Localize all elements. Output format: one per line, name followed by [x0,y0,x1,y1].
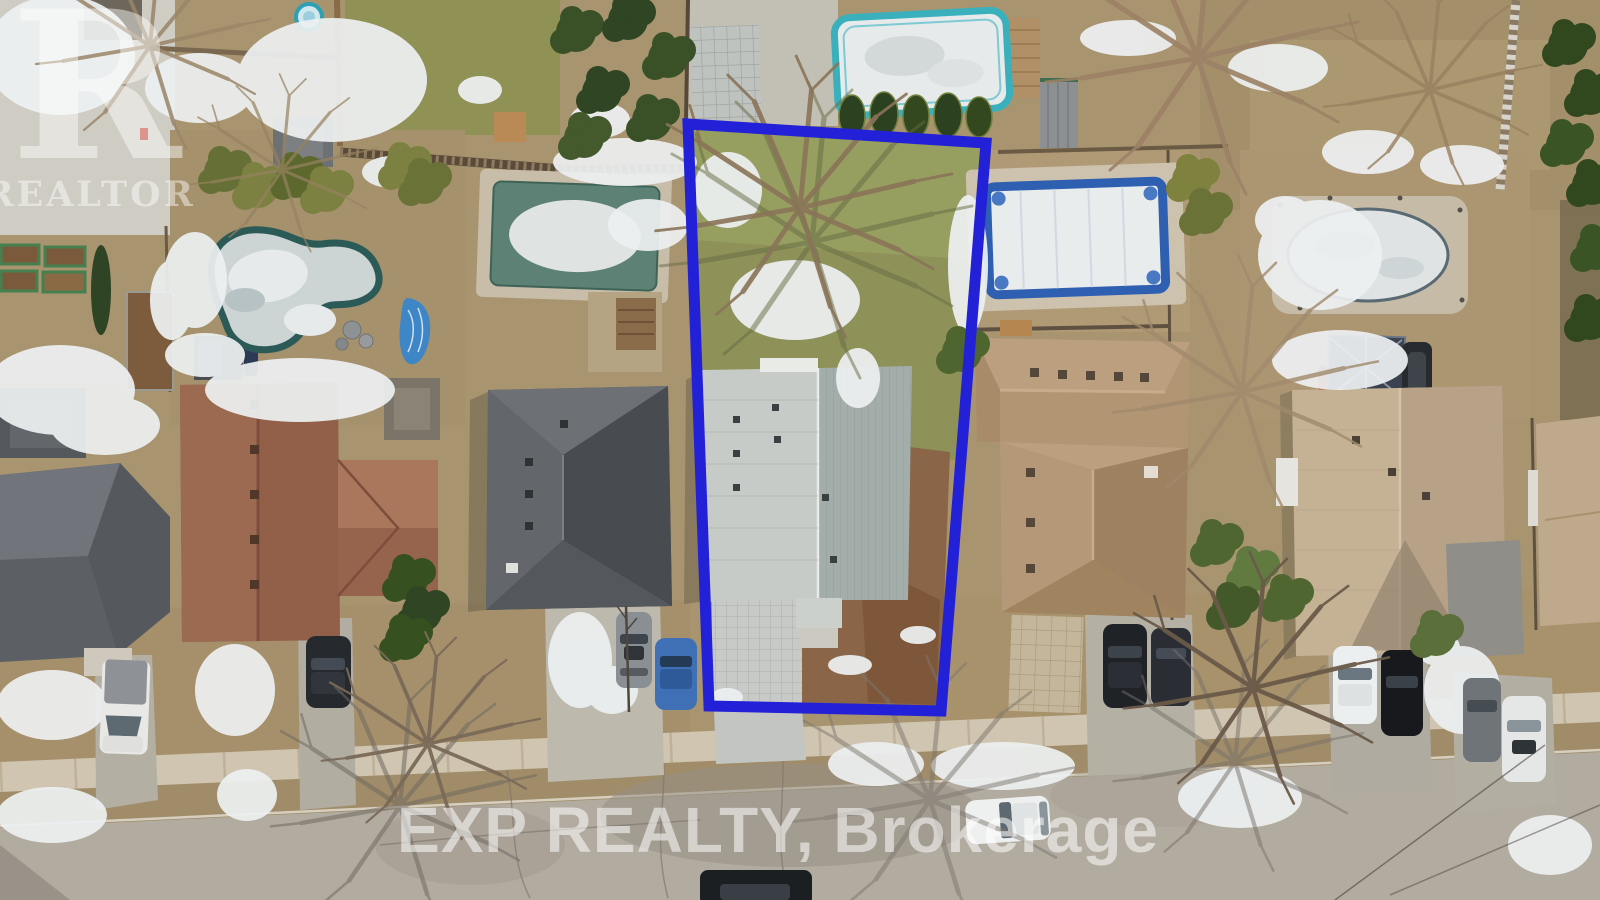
house-dark-gray [468,386,672,612]
windshield [1507,720,1541,732]
roof-ridge [1000,390,1165,392]
windshield [620,634,648,644]
realtor-logo-watermark: R REALTOR [0,0,196,215]
roof-left-facet [700,368,818,602]
brokerage-watermark: EXP REALTY, Brokerage [397,794,1159,866]
eave-strip [760,358,818,372]
windshield [105,715,142,736]
wood-gate [494,112,526,142]
house-shadow [468,392,488,612]
white-van [99,659,150,755]
house-tan [975,338,1190,618]
gate-tan-house [1000,320,1032,336]
front-porch [796,598,842,628]
patio-neighbor-top [690,25,761,121]
chimney [1144,466,1158,478]
paver-walk-tan-house [1008,615,1083,713]
windshield [311,658,345,670]
tarp-cover [104,659,148,704]
windshield [1108,646,1142,658]
gray-car [616,612,652,688]
pool-stairs-area [588,292,662,372]
aerial-photo-canvas: R REALTOR EXP REALTY, Brokerage [0,0,1600,900]
windshield [1386,676,1418,688]
subject-driveway-apron [714,708,806,764]
windshield [1467,700,1497,712]
windshield [660,656,692,667]
slim-cedar [91,245,111,335]
subject-house [684,358,912,628]
gray-suv-far-right [1463,678,1501,762]
dark-suv-right-2 [1151,628,1191,706]
dark-car-bottom [700,870,812,900]
white-car-right [1333,646,1377,724]
windshield [1338,668,1372,680]
white-car-far-right [1502,696,1546,782]
aerial-photo: R REALTOR EXP REALTY, Brokerage [0,0,1600,900]
blue-liner-pool [966,162,1187,311]
white-wall-sliver [1528,470,1538,526]
realtor-logo-caption: REALTOR [0,174,196,215]
dark-suv-right-1 [1103,624,1147,708]
shed-right-of-pool [1036,78,1078,148]
chimney [506,563,518,573]
blue-car [655,638,697,710]
dark-car-right [1381,650,1423,736]
